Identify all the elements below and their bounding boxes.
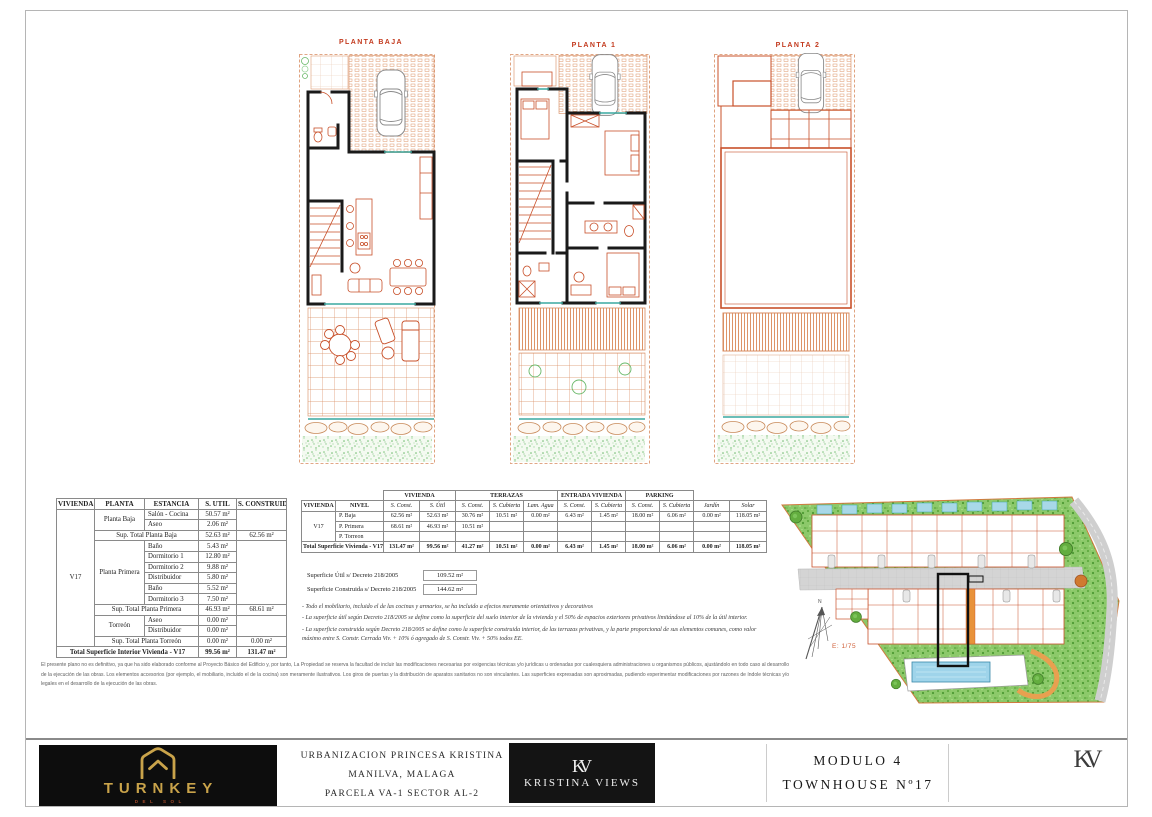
car-icon — [590, 55, 620, 116]
project-line: MANILVA, MALAGA — [277, 766, 527, 785]
module-line: TOWNHOUSE Nº17 — [768, 773, 948, 797]
terrace — [519, 353, 645, 415]
furniture — [519, 99, 644, 297]
construida-decree-value: 144.62 m² — [423, 584, 477, 595]
construida-decree-label: Superficie Construida s/ Decreto 218/200… — [307, 586, 417, 593]
exterior-surfaces-table: VIVIENDA TERRAZAS ENTRADA VIVIENDA PARKI… — [301, 490, 767, 553]
autumn-tree — [1075, 575, 1087, 587]
notes: - Todo el mobiliario, incluido el de las… — [302, 603, 772, 646]
titleblock-divider — [26, 738, 1127, 740]
garden — [717, 435, 850, 462]
module-line: MODULO 4 — [768, 749, 948, 773]
col-header: PLANTA — [95, 499, 145, 510]
plan-title-p2: PLANTA 2 — [776, 42, 821, 49]
legal-disclaimer: El presente plano no es definitivo, ya q… — [41, 661, 789, 690]
floor-plan-planta-baja — [298, 53, 436, 465]
house-icon — [135, 747, 181, 779]
lower-townhouse-row — [836, 589, 1064, 644]
walls — [517, 89, 645, 303]
vivienda-id: V17 — [57, 509, 95, 647]
pergola — [723, 313, 849, 351]
terrace — [723, 355, 849, 415]
north-arrow-icon: N — [806, 599, 832, 659]
stones — [518, 422, 645, 435]
turnkey-sub: DEL SOL — [130, 799, 185, 804]
site-plan: N — [776, 489, 1131, 714]
util-decree-label: Superficie Útil s/ Decreto 218/2005 — [307, 572, 417, 579]
pergola — [519, 308, 645, 350]
kv-monogram: KV — [578, 757, 586, 775]
interior-surfaces-table: VIVIENDA PLANTA ESTANCIA S. UTIL S. CONS… — [56, 498, 287, 658]
total-row-label: Total Superficie Interior Vivienda - V17 — [57, 647, 199, 658]
turnkey-name: TURNKEY — [98, 780, 219, 797]
col-header: S. UTIL — [199, 499, 237, 510]
decree-summary: Superficie Útil s/ Decreto 218/2005 109.… — [307, 570, 477, 597]
plan-title-baja: PLANTA BAJA — [339, 39, 403, 46]
project-line: PARCELA VA-1 SECTOR AL-2 — [277, 785, 527, 804]
glazing — [537, 89, 627, 303]
plan-title-p1: PLANTA 1 — [572, 42, 617, 49]
titleblock-separator — [948, 744, 949, 802]
scale-label: E: 1/75 — [832, 643, 856, 650]
util-decree-value: 109.52 m² — [423, 570, 477, 581]
floor-plan-planta-1 — [509, 53, 651, 465]
vivienda-id: V17 — [302, 511, 336, 542]
central-road — [798, 567, 1085, 590]
garden — [513, 436, 645, 462]
kv-name: KRISTINA VIEWS — [524, 777, 640, 789]
titleblock-separator — [766, 744, 767, 802]
col-header: S. CONSTRUIDA — [237, 499, 287, 510]
total-row-label: Total Superficie Vivienda - V17 — [302, 542, 384, 552]
col-header: VIVIENDA — [57, 499, 95, 510]
note-item: - Todo el mobiliario, incluido el de las… — [302, 603, 772, 612]
floor-plan-planta-2 — [713, 53, 856, 465]
kv-monogram-right: KV — [1056, 746, 1120, 774]
car-icon — [375, 70, 408, 136]
col-header: ESTANCIA — [145, 499, 199, 510]
stones — [722, 421, 850, 434]
project-info: URBANIZACION PRINCESA KRISTINA MANILVA, … — [277, 747, 527, 804]
car-icon — [796, 53, 826, 112]
entry-path — [311, 56, 348, 89]
kristina-views-logo: KV KRISTINA VIEWS — [509, 743, 655, 803]
garden — [302, 436, 432, 462]
module-info: MODULO 4 TOWNHOUSE Nº17 — [768, 749, 948, 796]
plants — [302, 58, 309, 79]
svg-text:N: N — [818, 599, 822, 605]
note-item: - La superficie construida según Decreto… — [302, 626, 772, 645]
turnkey-logo: TURNKEY DEL SOL — [39, 745, 277, 806]
plan-sheet: PLANTA BAJA PLANTA 1 PLANTA 2 — [25, 10, 1128, 807]
project-line: URBANIZACION PRINCESA KRISTINA — [277, 747, 527, 766]
stones — [305, 422, 432, 435]
note-item: - La superficie útil según Decreto 218/2… — [302, 614, 772, 623]
